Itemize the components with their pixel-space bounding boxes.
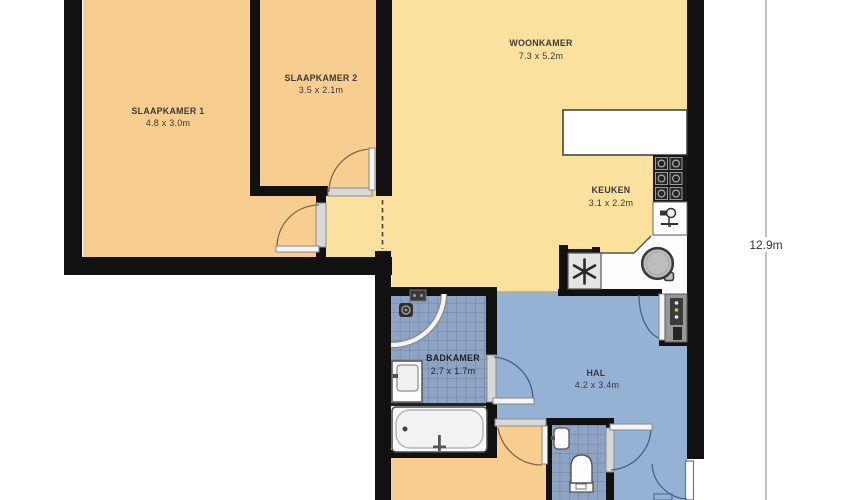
svg-text:12.9m: 12.9m — [749, 238, 782, 252]
svg-text:KEUKEN: KEUKEN — [592, 185, 631, 195]
svg-text:SLAAPKAMER 1: SLAAPKAMER 1 — [131, 106, 204, 116]
svg-text:3.5 x 2.1m: 3.5 x 2.1m — [299, 85, 344, 95]
svg-text:4.8 x 3.0m: 4.8 x 3.0m — [146, 118, 191, 128]
svg-text:7.3 x 5.2m: 7.3 x 5.2m — [519, 51, 564, 61]
svg-text:SLAAPKAMER 2: SLAAPKAMER 2 — [284, 73, 357, 83]
svg-text:HAL: HAL — [587, 368, 606, 378]
svg-text:BADKAMER: BADKAMER — [426, 353, 480, 363]
svg-text:3.1 x 2.2m: 3.1 x 2.2m — [589, 198, 634, 208]
svg-text:4.2 x 3.4m: 4.2 x 3.4m — [575, 380, 620, 390]
svg-text:2.7 x 1.7m: 2.7 x 1.7m — [431, 366, 476, 376]
svg-text:WOONKAMER: WOONKAMER — [509, 38, 573, 48]
